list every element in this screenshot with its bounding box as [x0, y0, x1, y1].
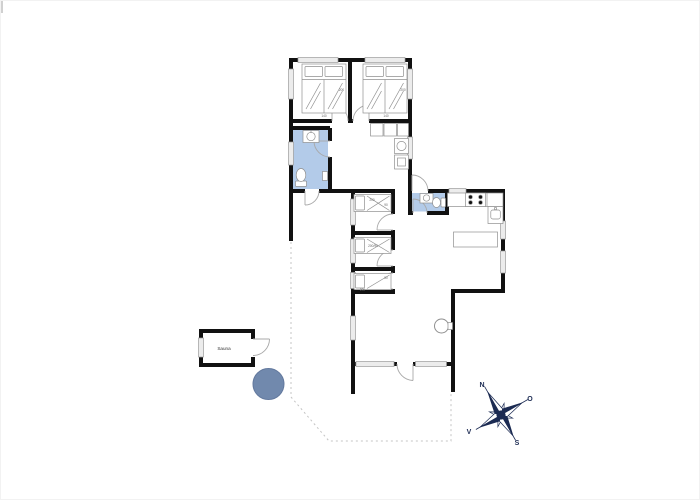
pillow — [325, 67, 343, 77]
bed-dim: 90 — [384, 276, 388, 280]
bed-dim: 140 — [321, 114, 327, 118]
bathroom-2-toilet — [433, 198, 446, 208]
kitchen-island — [454, 232, 498, 247]
kitchen-sink-icon — [488, 207, 503, 224]
bathroom-1-toilet — [296, 169, 307, 187]
window — [289, 69, 294, 99]
compass-label-o: O — [527, 396, 533, 403]
shower-control — [323, 172, 328, 181]
bed-dim: 200 — [339, 88, 345, 92]
bed-dim: 200 — [360, 288, 366, 292]
wood-stove-icon — [435, 319, 453, 333]
compass-label-s: S — [515, 440, 520, 447]
floor-plan-svg: Sauna 140 200 140 200 200 90 200/90 90 2… — [1, 1, 700, 500]
window — [199, 338, 204, 357]
walls — [199, 58, 505, 394]
closet — [398, 124, 409, 137]
bed-dim: 140 — [383, 114, 389, 118]
bed-dim: 90 — [384, 203, 388, 207]
edge-artifact — [1, 1, 3, 13]
compass-rose: N O S V — [459, 371, 542, 455]
window — [408, 69, 413, 99]
pillow — [305, 67, 323, 77]
bed-dim: 200/90 — [368, 244, 378, 248]
pillow — [356, 196, 365, 210]
window — [289, 142, 294, 165]
floorplan-page: Sauna 140 200 140 200 200 90 200/90 90 2… — [0, 0, 700, 500]
pillow — [356, 239, 365, 252]
hot-tub — [253, 369, 284, 400]
window — [416, 362, 447, 367]
compass-label-v: V — [467, 429, 472, 436]
door-kitchen-north — [412, 175, 428, 191]
pillow — [366, 67, 384, 77]
closet — [371, 124, 384, 137]
pillow — [386, 67, 404, 77]
compass-label-n: N — [479, 382, 484, 389]
window — [501, 251, 506, 273]
stove-icon — [466, 193, 486, 207]
bed-dim: 200 — [400, 88, 406, 92]
sauna-label: Sauna — [217, 346, 231, 351]
window — [356, 362, 394, 367]
bathroom-1-sink — [303, 131, 319, 143]
window — [298, 58, 338, 63]
door-terrace — [397, 364, 413, 381]
door-room-a — [377, 214, 393, 230]
bathroom-2-sink — [420, 194, 433, 204]
closet — [384, 124, 397, 137]
compass-star — [459, 371, 542, 455]
window — [351, 316, 356, 340]
bed-dim: 200 — [369, 198, 375, 202]
door-sauna — [253, 339, 270, 356]
hall-closets — [371, 124, 409, 137]
pillow — [356, 275, 365, 288]
door-entrance-south — [305, 191, 319, 205]
utility-appliances — [395, 139, 409, 170]
window — [365, 58, 405, 63]
